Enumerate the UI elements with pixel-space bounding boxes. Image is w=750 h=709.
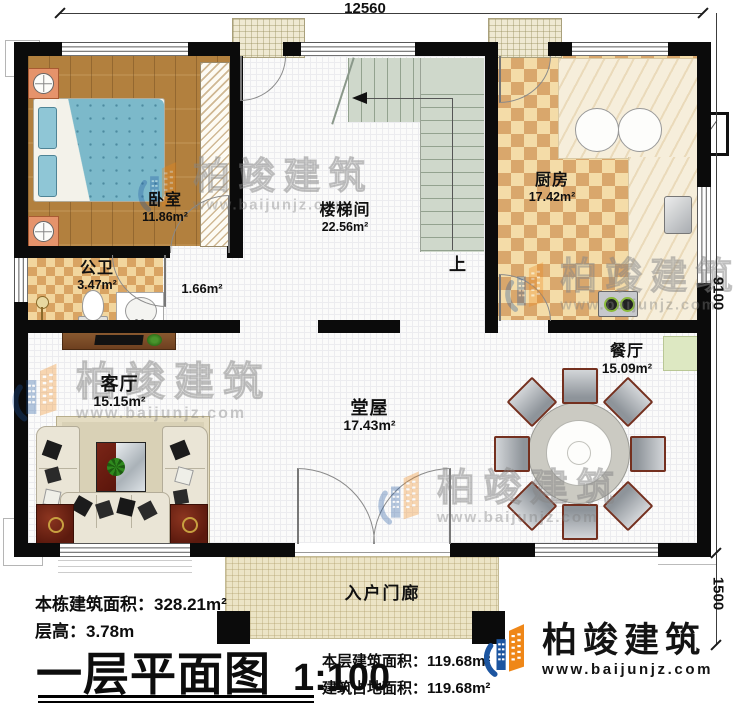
wall-segment [318,320,400,333]
window [572,42,668,56]
footprint-line: 建筑占地面积：119.68m² [322,677,490,698]
wall-segment [548,42,572,56]
room-label-porch: 入户门廊 [310,584,455,603]
stove-burner [604,297,619,312]
kitchen-basin [618,108,662,152]
window [697,187,711,283]
room-area: 1.66m² [168,282,236,297]
wall-segment [188,42,240,56]
window [301,42,415,56]
floor-area-value: 119.68m² [427,653,490,670]
coffee-table [96,442,146,492]
wall-segment [548,320,697,333]
room-name: 公卫 [52,260,142,278]
room-label-dining: 餐厅 15.09m² [582,343,672,376]
dining-table-center [567,441,591,465]
room-name: 餐厅 [582,343,672,361]
wall-segment [283,42,301,56]
room-name: 客厅 [72,374,167,394]
dimension-porch-depth: 1500 [710,572,727,616]
dining-chair [494,436,530,472]
room-area: 11.86m² [120,210,210,224]
room-label-living: 客厅 15.15m² [72,374,167,410]
window [60,543,190,557]
brand-logo-icon [484,620,534,680]
bed-pillow [38,107,57,149]
wall-segment [415,42,498,56]
stair-flight-horizontal [348,58,420,122]
room-label-bathroom: 公卫 3.47m² [52,260,142,292]
floor-plan-canvas: 柏竣建筑 www.baijunjz.com 柏竣建筑 www.baijunjz.… [0,0,750,709]
dimension-top-width: 12560 [330,0,400,17]
nightstand [28,216,59,247]
plant-icon [147,334,162,346]
medallion-icon [182,517,198,533]
side-table [170,504,208,544]
up-text: 上 [438,255,478,274]
window [535,543,658,557]
room-area: 15.09m² [582,361,672,376]
room-area: 17.42m² [507,190,597,204]
room-label-corridor: 1.66m² [168,282,236,297]
footprint-value: 119.68m² [427,680,490,697]
kitchen-basin [575,108,619,152]
kitchen-sink [664,196,692,234]
total-area-value: 328.21m² [154,595,227,614]
exterior-step-lines [58,560,192,573]
dining-chair [630,436,666,472]
nightstand [28,68,59,99]
wall-segment [190,543,295,557]
room-name: 入户门廊 [310,584,455,603]
wall-segment [14,320,240,333]
room-area: 15.15m² [72,394,167,410]
toilet-bowl [82,290,104,321]
floor-area-line: 本层建筑面积：119.68m² [322,650,490,671]
window [62,42,188,56]
room-name: 堂屋 [322,398,417,418]
stair-landing [420,58,484,94]
room-area: 22.56m² [300,220,390,234]
bed [33,98,165,202]
room-area: 3.47m² [52,278,142,292]
brand-url: www.baijunjz.com [542,661,713,678]
wall-segment [485,320,498,333]
wall-segment [485,56,498,320]
wall-segment [14,543,60,557]
floor-area-label: 本层建筑面积： [322,653,427,670]
room-name: 卧室 [120,192,210,210]
wall-segment [450,543,535,557]
wall-segment [697,42,711,187]
room-label-stairwell: 楼梯间 22.56m² [300,202,390,234]
room-name: 楼梯间 [300,202,390,220]
tv [94,335,143,345]
wall-segment [697,283,711,557]
stair-direction-arrow [352,92,367,104]
room-name: 厨房 [507,172,597,190]
total-area-label: 本栋建筑面积： [35,595,154,614]
footprint-label: 建筑占地面积： [322,680,427,697]
brand-logo: 柏竣建筑 www.baijunjz.com [484,620,713,680]
room-area: 17.43m² [322,418,417,434]
side-table [36,504,74,544]
title-underline [38,695,314,698]
room-label-bedroom: 卧室 11.86m² [120,192,210,224]
wall-segment [658,543,711,557]
entrance-threshold [295,552,450,553]
kitchen-counter-right [628,157,699,321]
tv-cabinet [62,331,176,350]
exterior-ground-line [658,564,717,565]
floor-drain [36,296,49,309]
cushion [173,489,189,505]
plant-icon [107,458,125,476]
room-label-hall: 堂屋 17.43m² [322,398,417,434]
floor-drain-stem [41,307,43,320]
dining-chair [562,504,598,540]
stair-direction-line [452,98,453,250]
lamp-icon [33,221,54,242]
title-underline [38,701,314,703]
window [14,258,28,302]
bed-blanket [56,99,114,201]
medallion-icon [48,517,64,533]
stairs-up-label: 上 [438,255,478,274]
wall-segment [14,42,28,258]
lamp-icon [33,73,54,94]
wall-segment [14,302,28,557]
stove-burner [620,297,635,312]
dimension-right-height: 9100 [710,272,727,316]
total-area-line: 本栋建筑面积：328.21m² [35,590,227,615]
brand-name: 柏竣建筑 [542,622,713,661]
room-label-kitchen: 厨房 17.42m² [507,172,597,204]
bed-pillow [38,155,57,197]
stair-direction-line [366,98,453,99]
